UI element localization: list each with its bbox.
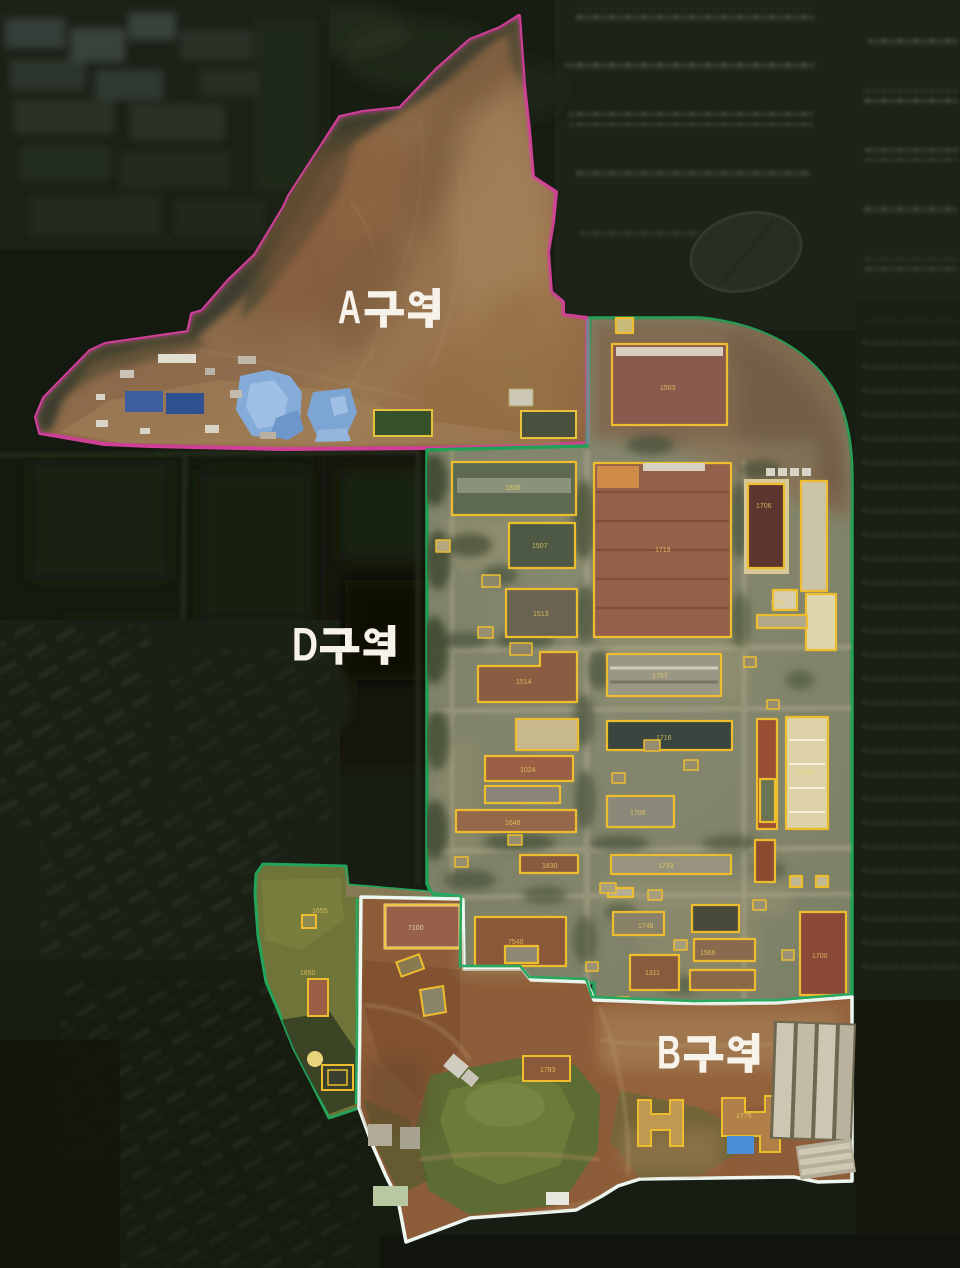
svg-text:B: B <box>657 1026 681 1079</box>
svg-text:1757: 1757 <box>652 673 668 680</box>
svg-text:1783: 1783 <box>540 1067 556 1074</box>
svg-text:1806: 1806 <box>505 485 521 492</box>
svg-text:1566: 1566 <box>700 950 716 957</box>
svg-text:1708: 1708 <box>630 810 646 817</box>
svg-text:1733: 1733 <box>658 863 674 870</box>
svg-text:7540: 7540 <box>508 939 524 946</box>
svg-text:1024: 1024 <box>520 767 536 774</box>
svg-text:1719: 1719 <box>655 547 671 554</box>
svg-text:1716: 1716 <box>656 735 672 742</box>
svg-text:1705: 1705 <box>798 770 814 777</box>
svg-text:1830: 1830 <box>542 863 558 870</box>
svg-text:A: A <box>338 281 361 334</box>
svg-text:1655: 1655 <box>312 908 328 915</box>
svg-text:1706: 1706 <box>756 503 772 510</box>
svg-text:1514: 1514 <box>516 679 532 686</box>
svg-text:D: D <box>292 618 318 671</box>
svg-text:1503: 1503 <box>660 385 676 392</box>
svg-text:1700: 1700 <box>812 953 828 960</box>
svg-text:1776: 1776 <box>736 1113 752 1120</box>
svg-text:1746: 1746 <box>638 923 654 930</box>
svg-text:1648: 1648 <box>505 820 521 827</box>
svg-text:7100: 7100 <box>408 925 424 932</box>
svg-text:1711: 1711 <box>770 600 785 607</box>
svg-text:1513: 1513 <box>533 611 549 618</box>
svg-text:1507: 1507 <box>532 543 548 550</box>
svg-text:1650: 1650 <box>300 970 316 977</box>
svg-text:1311: 1311 <box>645 970 660 977</box>
